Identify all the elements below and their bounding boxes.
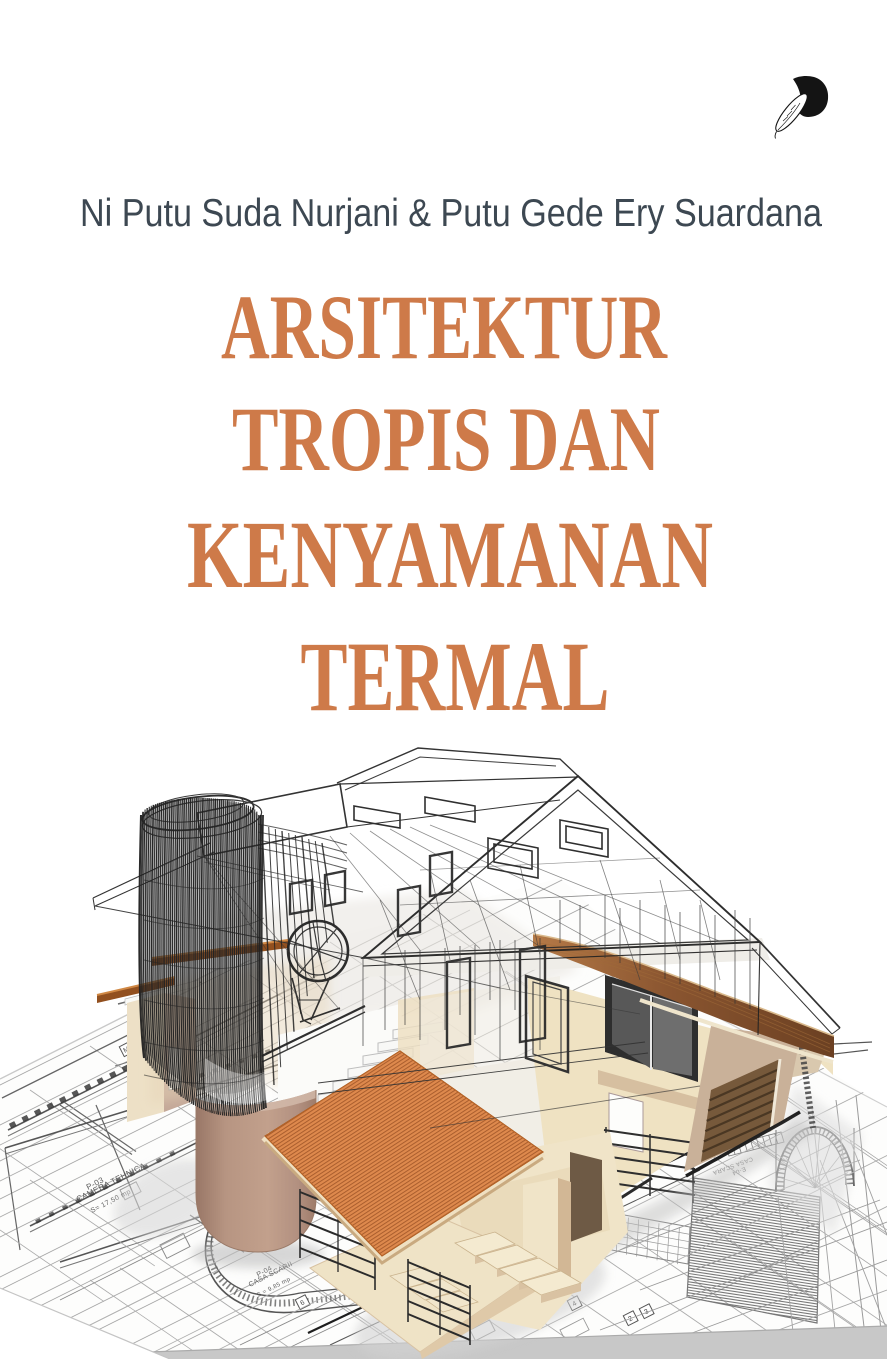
svg-text:ARSITEKTUR: ARSITEKTUR (221, 276, 668, 378)
svg-text:Ni Putu Suda Nurjani & Putu Ge: Ni Putu Suda Nurjani & Putu Gede Ery Sua… (80, 192, 823, 235)
svg-text:TERMAL: TERMAL (301, 621, 610, 732)
svg-text:KENYAMANAN: KENYAMANAN (187, 501, 713, 608)
svg-text:TROPIS DAN: TROPIS DAN (232, 388, 660, 490)
